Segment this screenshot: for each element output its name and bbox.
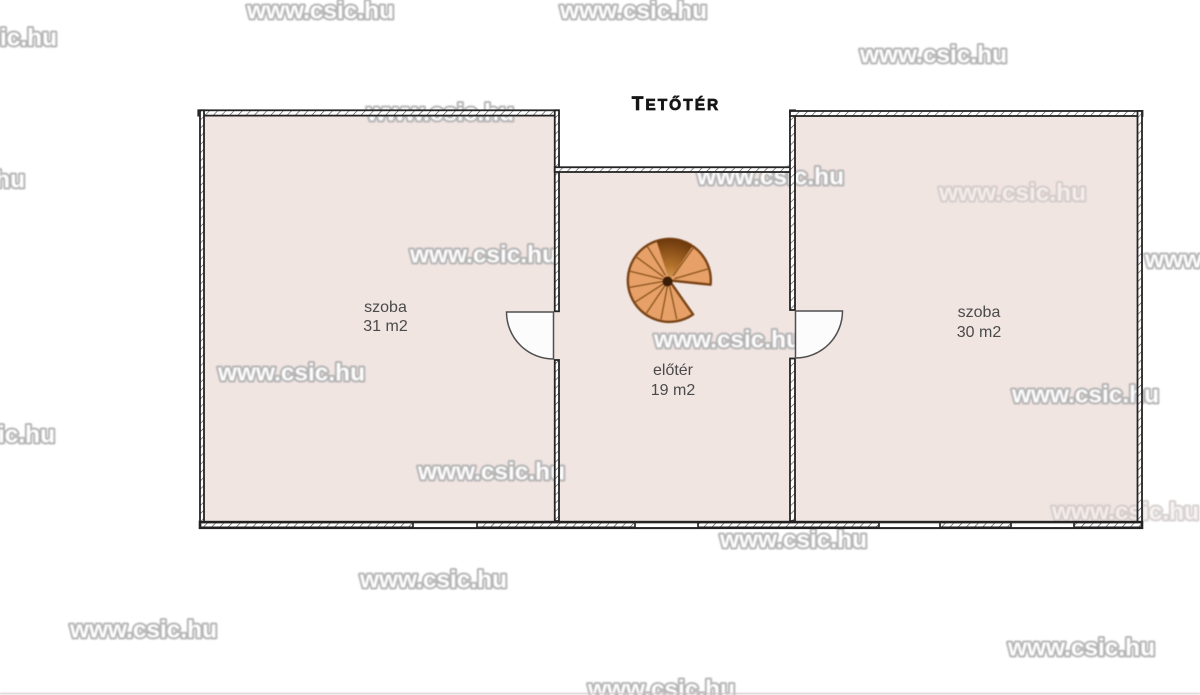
svg-text:www.csic.hu: www.csic.hu (0, 422, 55, 449)
svg-text:www.csic.hu: www.csic.hu (719, 527, 867, 554)
svg-text:www.csic.hu: www.csic.hu (217, 360, 365, 387)
svg-text:www.csic.hu: www.csic.hu (559, 0, 707, 25)
svg-text:www.csic.hu: www.csic.hu (69, 617, 217, 644)
svg-text:www.csic.hu: www.csic.hu (653, 327, 801, 354)
svg-text:www.csic.hu: www.csic.hu (417, 459, 565, 486)
svg-text:www.csic.hu: www.csic.hu (0, 167, 25, 194)
svg-text:www.csic.hu: www.csic.hu (246, 0, 394, 25)
svg-text:www.csic.hu: www.csic.hu (409, 242, 557, 269)
svg-text:www.csic.hu: www.csic.hu (587, 676, 735, 695)
svg-text:www.csic.hu: www.csic.hu (1007, 635, 1155, 662)
svg-text:www.csic.hu: www.csic.hu (1144, 247, 1200, 274)
svg-text:www.csic.hu: www.csic.hu (359, 567, 507, 594)
svg-text:www.csic.hu: www.csic.hu (859, 42, 1007, 69)
svg-text:www.csic.hu: www.csic.hu (0, 25, 57, 52)
svg-text:www.csic.hu: www.csic.hu (938, 180, 1086, 207)
